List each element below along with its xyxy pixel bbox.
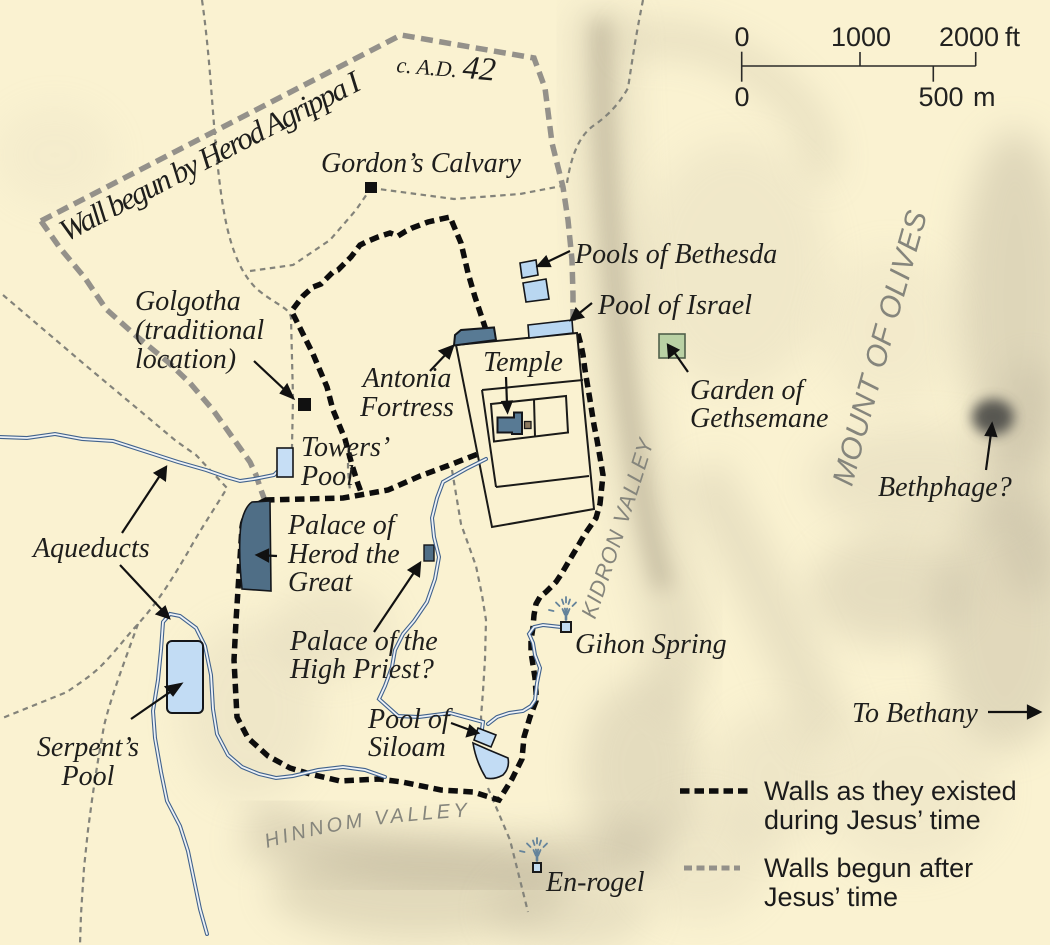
svg-text:Garden of: Garden of bbox=[690, 375, 807, 406]
svg-text:Temple: Temple bbox=[483, 347, 563, 378]
svg-text:Towers’: Towers’ bbox=[301, 432, 390, 463]
svg-text:location): location) bbox=[135, 344, 236, 375]
svg-text:Gethsemane: Gethsemane bbox=[690, 403, 828, 434]
svg-text:Golgotha: Golgotha bbox=[135, 286, 241, 317]
svg-text:To Bethany: To Bethany bbox=[852, 698, 978, 729]
svg-text:0: 0 bbox=[734, 22, 749, 52]
svg-text:Herod the: Herod the bbox=[287, 539, 400, 570]
svg-text:Pool of: Pool of bbox=[367, 704, 453, 735]
svg-text:m: m bbox=[973, 82, 996, 112]
svg-text:High Priest?: High Priest? bbox=[289, 654, 434, 685]
svg-text:Gihon Spring: Gihon Spring bbox=[575, 629, 727, 660]
svg-text:Pool: Pool bbox=[61, 761, 115, 792]
svg-text:Antonia: Antonia bbox=[361, 363, 452, 394]
svg-text:Bethphage?: Bethphage? bbox=[878, 472, 1012, 503]
svg-text:1000: 1000 bbox=[831, 22, 891, 52]
svg-text:2000: 2000 bbox=[939, 22, 999, 52]
svg-text:Gordon’s Calvary: Gordon’s Calvary bbox=[321, 148, 521, 179]
svg-text:Walls as they existed: Walls as they existed bbox=[764, 776, 1017, 806]
svg-text:ft: ft bbox=[1005, 22, 1021, 52]
svg-text:(traditional: (traditional bbox=[135, 315, 264, 346]
svg-text:500: 500 bbox=[918, 82, 963, 112]
svg-text:Aqueducts: Aqueducts bbox=[31, 533, 150, 564]
svg-text:Pool of Israel: Pool of Israel bbox=[597, 290, 752, 321]
svg-text:Siloam: Siloam bbox=[368, 732, 446, 763]
svg-text:Palace of: Palace of bbox=[287, 510, 398, 541]
svg-text:0: 0 bbox=[734, 82, 749, 112]
svg-text:Palace of the: Palace of the bbox=[289, 626, 438, 657]
svg-text:En-rogel: En-rogel bbox=[545, 867, 645, 898]
svg-text:Pool: Pool bbox=[300, 461, 354, 492]
svg-text:Fortress: Fortress bbox=[359, 392, 454, 423]
svg-text:Serpent’s: Serpent’s bbox=[37, 732, 139, 763]
svg-text:Great: Great bbox=[288, 567, 354, 598]
svg-text:during Jesus’ time: during Jesus’ time bbox=[764, 805, 981, 835]
svg-text:Pools of Bethesda: Pools of Bethesda bbox=[574, 239, 777, 270]
svg-text:Jesus’ time: Jesus’ time bbox=[764, 882, 898, 912]
svg-text:Walls begun after: Walls begun after bbox=[764, 853, 973, 883]
